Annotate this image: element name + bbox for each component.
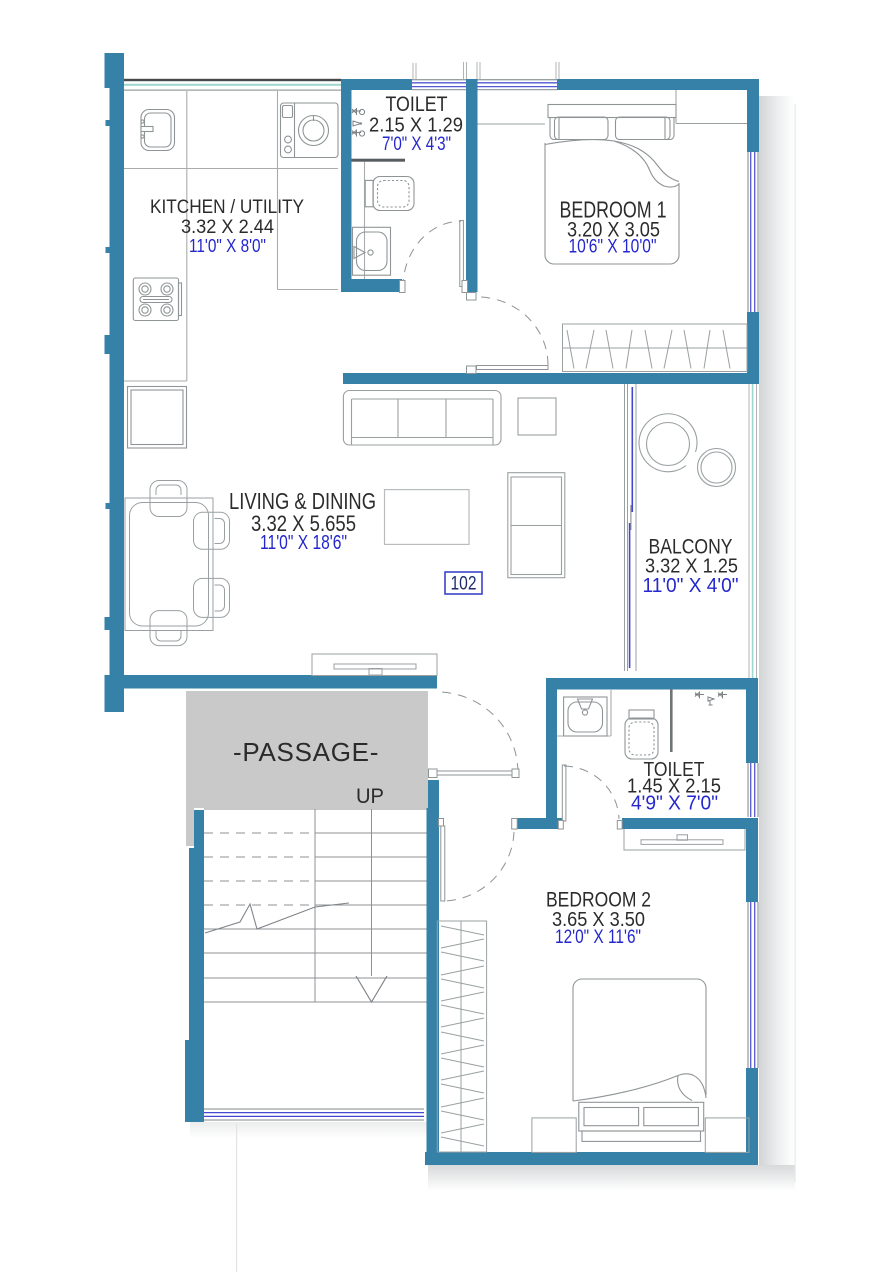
- svg-text:UP: UP: [356, 785, 384, 808]
- svg-text:11'0" X 4'0": 11'0" X 4'0": [643, 575, 739, 597]
- svg-text:11'0" X 8'0": 11'0" X 8'0": [189, 236, 266, 256]
- svg-text:102: 102: [451, 573, 477, 595]
- svg-text:-PASSAGE-: -PASSAGE-: [233, 737, 379, 767]
- svg-text:10'6" X 10'0": 10'6" X 10'0": [569, 236, 657, 258]
- svg-text:12'0" X 11'6": 12'0" X 11'6": [555, 927, 641, 948]
- svg-text:7'0" X 4'3": 7'0" X 4'3": [382, 134, 451, 155]
- svg-text:3.32 X 2.44: 3.32 X 2.44: [181, 217, 274, 238]
- svg-text:KITCHEN / UTILITY: KITCHEN / UTILITY: [150, 197, 304, 218]
- svg-text:TOILET: TOILET: [386, 92, 448, 116]
- svg-text:4'9" X 7'0": 4'9" X 7'0": [631, 793, 718, 815]
- svg-text:11'0" X 18'6": 11'0" X 18'6": [260, 532, 347, 554]
